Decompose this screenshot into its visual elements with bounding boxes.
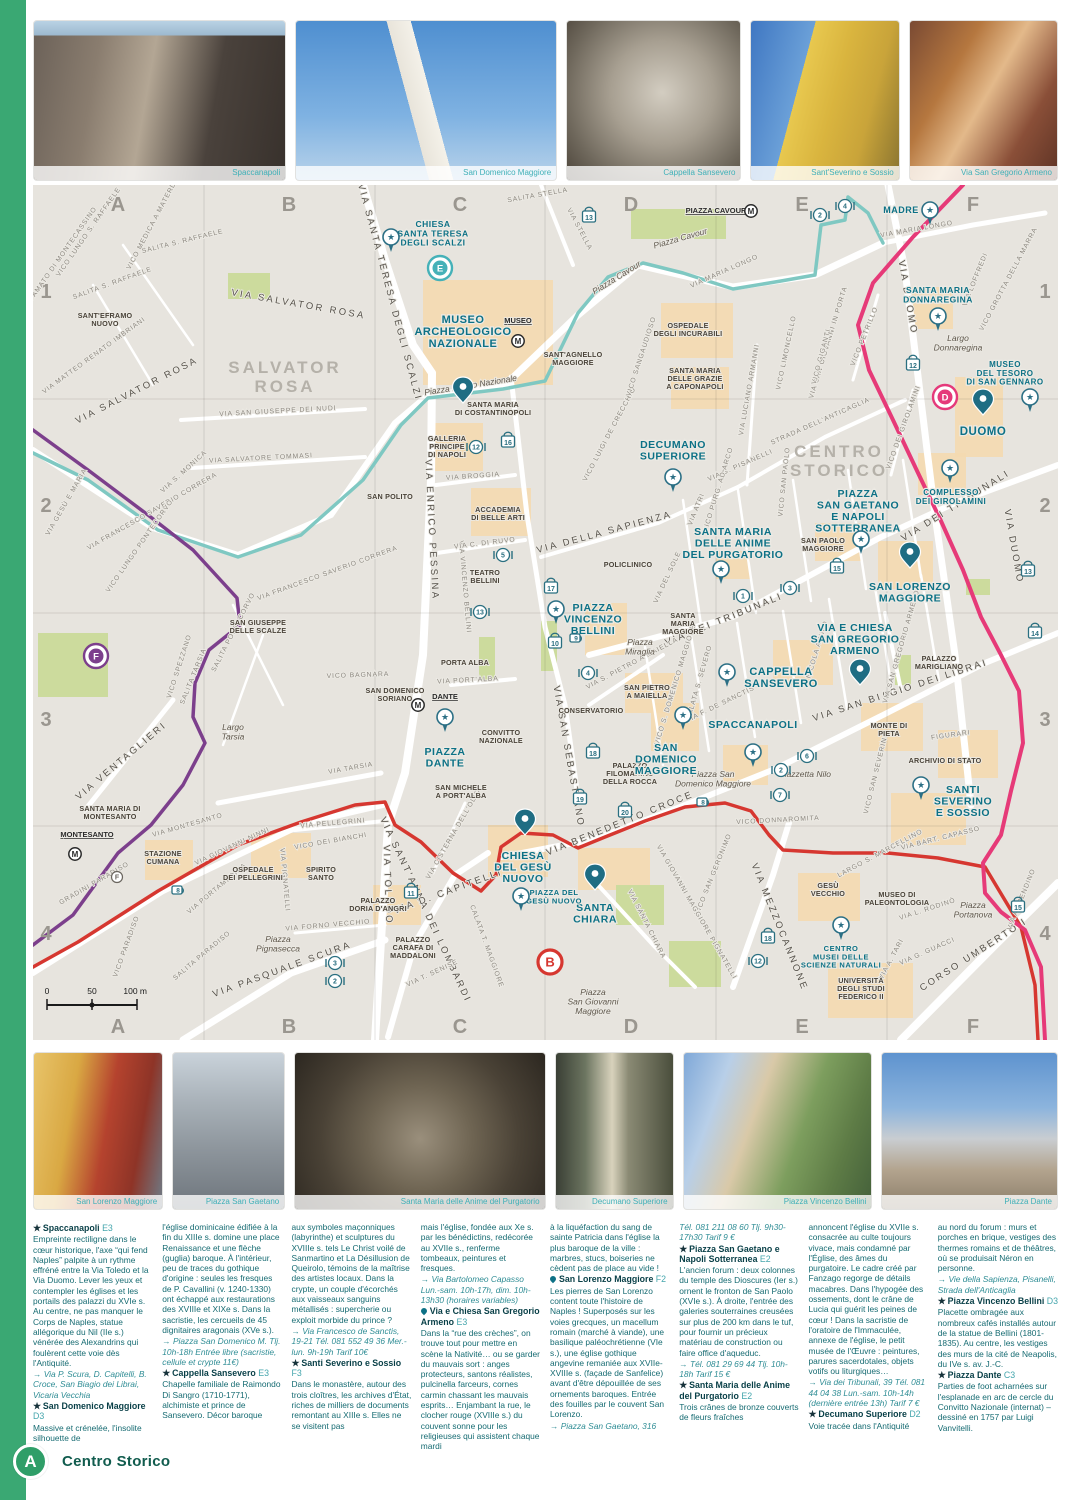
svg-text:11: 11: [407, 891, 415, 898]
site-label: SANT'AGNELLOMAGGIORE: [544, 350, 603, 367]
svg-text:18: 18: [764, 936, 772, 943]
poi-label: COMPLESSODEI GIROLAMINI: [916, 488, 987, 506]
pin-icon: [420, 1307, 428, 1315]
photo-caption: San Domenico Maggiore: [296, 166, 556, 180]
photo-gaetano: Piazza San Gaetano: [172, 1052, 285, 1210]
poi-label: CAPPELLASANSEVERO: [744, 666, 818, 690]
ring-badge-D: D: [933, 385, 957, 409]
poi-label: SANTACHIARA: [573, 902, 617, 926]
landmark-block: [955, 377, 1003, 457]
star-icon: ★: [809, 1409, 817, 1419]
entry-description: aux symboles maçonniques (labyrinthe) et…: [292, 1222, 412, 1325]
metro-icon: M: [745, 205, 757, 217]
svg-text:D: D: [942, 392, 949, 403]
entry-name: Decumano Superiore: [818, 1409, 906, 1419]
photo-san-domenico: San Domenico Maggiore: [295, 20, 557, 181]
entry-description: Dans le monastère, autour des trois cloî…: [292, 1379, 412, 1430]
grid-number: 4: [1039, 923, 1051, 945]
svg-text:3: 3: [333, 961, 337, 968]
metro-station-name: DANTE: [432, 692, 458, 701]
star-icon: ★: [33, 1223, 41, 1233]
photo-severino: Sant'Severino e Sossio: [750, 20, 899, 181]
entry-description: Chapelle familiale de Raimondo Di Sangro…: [162, 1379, 282, 1420]
photo-sansevero: Cappella Sansevero: [566, 20, 741, 181]
svg-text:8: 8: [701, 799, 705, 806]
site-label: ARCHIVIO DI STATO: [909, 756, 982, 765]
entry-practical-info: → Vie della Sapienza, Pisanelli, Strada …: [938, 1274, 1058, 1295]
site-label: SANTA MARIADELLE GRAZIEA CAPONAPOLI: [666, 366, 723, 391]
svg-text:2: 2: [333, 979, 337, 986]
svg-text:★: ★: [387, 232, 395, 242]
guide-text-columns: ★Spaccanapoli E3Empreinte rectiligne dan…: [33, 1222, 1058, 1440]
ring-badge-E: E: [428, 256, 452, 280]
grid-letter: C: [453, 194, 467, 216]
bottom-photo-strip: San Lorenzo MaggiorePiazza San GaetanoSa…: [33, 1052, 1058, 1210]
poi-label: PIAZZADANTE: [425, 746, 466, 770]
svg-text:★: ★: [552, 604, 560, 614]
svg-text:E: E: [437, 263, 443, 274]
svg-text:2: 2: [818, 213, 822, 220]
poi-label: SANTA MARIADELLE ANIMEDEL PURGATORIO: [683, 526, 784, 561]
grid-number: 2: [40, 495, 51, 517]
metro-icon: M: [412, 699, 424, 711]
grid-reference: E3: [456, 1317, 467, 1327]
svg-text:12: 12: [909, 363, 917, 370]
pin-icon: [549, 1275, 557, 1283]
top-photo-strip: SpaccanapoliSan Domenico MaggioreCappell…: [33, 20, 1058, 181]
site-label: SAN GIUSEPPEDELLE SCALZE: [230, 618, 287, 635]
grid-reference: D2: [909, 1409, 920, 1419]
site-label: PALAZZOCARAFA DIMADDALONI: [390, 935, 436, 960]
metro-icon: M: [512, 335, 524, 347]
svg-text:13: 13: [585, 215, 593, 222]
entry-description: Dans la “rue des crèches”, on trouve tou…: [421, 1328, 541, 1452]
svg-text:7: 7: [778, 793, 782, 800]
site-label: ACCADEMIADI BELLE ARTI: [471, 505, 525, 522]
star-icon: ★: [33, 1401, 41, 1411]
region-name: Centro Storico: [62, 1453, 170, 1470]
photo-gregorio: Via San Gregorio Armeno: [909, 20, 1058, 181]
entry-heading: ★Piazza Dante C3: [938, 1370, 1058, 1380]
entry-practical-info: → Tél. 081 29 69 44 Tlj. 10h-18h Tarif 1…: [679, 1359, 799, 1380]
site-label: SAN PIETROA MAIELLA: [624, 683, 670, 700]
entry-name: Santa Maria delle Anime del Purgatorio: [679, 1380, 790, 1400]
svg-text:★: ★: [934, 311, 942, 321]
scale-label: 50: [87, 986, 97, 996]
guide-column-4: mais l'église, fondée aux Xe s. par les …: [421, 1222, 541, 1440]
svg-text:12: 12: [754, 959, 762, 966]
entry-name: Spaccanapoli: [43, 1223, 100, 1233]
photo-caption: Cappella Sansevero: [567, 166, 740, 180]
svg-text:★: ★: [441, 712, 449, 722]
site-label: SANTA MARIA DIMONTESANTO: [79, 804, 140, 821]
svg-text:1: 1: [741, 594, 745, 601]
svg-text:★: ★: [857, 534, 865, 544]
grid-letter: F: [967, 1016, 979, 1038]
svg-text:★: ★: [749, 747, 757, 757]
entry-heading: ★Santi Severino e Sossio F3: [292, 1358, 412, 1379]
star-icon: ★: [679, 1380, 687, 1390]
svg-text:17: 17: [547, 586, 555, 593]
entry-heading: ★Santa Maria delle Anime del Purgatorio …: [679, 1380, 799, 1401]
site-label: SPIRITOSANTO: [306, 865, 336, 882]
cafe-badge-8: 8: [172, 886, 183, 894]
grid-number: 3: [40, 709, 51, 731]
poi-label: MADRE: [883, 205, 919, 215]
svg-text:20: 20: [621, 810, 629, 817]
svg-text:★: ★: [723, 667, 731, 677]
map-canvas: AABBCCDDEEFF11223344SALVATORROSACENTROST…: [33, 185, 1058, 1040]
site-label: PALAZZOMARIGLIANO: [915, 654, 964, 671]
svg-text:3: 3: [788, 586, 792, 593]
metro-station-name: MUSEO: [504, 316, 532, 325]
entry-description: l'église dominicaine édifiée à la fin du…: [162, 1222, 282, 1335]
entry-description: annoncent l'église du XVIIe s. consacrée…: [809, 1222, 929, 1376]
entry-description: mais l'église, fondée aux Xe s. par les …: [421, 1222, 541, 1273]
guide-column-3: aux symboles maçonniques (labyrinthe) et…: [292, 1222, 412, 1440]
grid-letter: E: [795, 194, 808, 216]
grid-letter: A: [111, 1016, 125, 1038]
entry-heading: San Lorenzo Maggiore F2: [550, 1274, 670, 1284]
grid-reference: D3: [1047, 1296, 1058, 1306]
grid-reference: F3: [292, 1368, 302, 1378]
photo-caption: San Lorenzo Maggiore: [34, 1195, 162, 1209]
region-letter-badge: A: [13, 1444, 48, 1479]
entry-heading: ★Piazza San Gaetano e Napoli Sotterranea…: [679, 1244, 799, 1265]
entry-practical-info: → Via Francesco de Sanctis, 19-21 Tél. 0…: [292, 1326, 412, 1357]
grid-letter: B: [282, 1016, 296, 1038]
site-label: POLICLINICO: [604, 560, 653, 569]
svg-text:4: 4: [586, 671, 590, 678]
guide-column-6: Tél. 081 211 08 60 Tlj. 9h30-17h30 Tarif…: [679, 1222, 799, 1440]
site-label: CONSERVATORIO: [559, 706, 624, 715]
svg-text:★: ★: [679, 710, 687, 720]
entry-practical-info: → Piazza San Gaetano, 316: [550, 1421, 670, 1431]
guide-column-1: ★Spaccanapoli E3Empreinte rectiligne dan…: [33, 1222, 153, 1440]
entry-name: Via e Chiesa San Gregorio Armeno: [421, 1306, 540, 1326]
svg-text:★: ★: [926, 205, 934, 215]
svg-text:10: 10: [551, 641, 559, 648]
poi-label: SANTA MARIADONNAREGINA: [903, 285, 973, 304]
svg-text:M: M: [515, 337, 522, 346]
poi-label: SPACCANAPOLI: [708, 719, 797, 731]
place-name: LargoTarsia: [222, 722, 245, 742]
entry-description: Trois crânes de bronze couverts de fleur…: [679, 1402, 799, 1423]
grid-reference: E2: [760, 1254, 771, 1264]
grid-reference: E3: [102, 1223, 113, 1233]
photo-purgatorio: Santa Maria delle Anime del Purgatorio: [294, 1052, 545, 1210]
ring-badge-F: F: [112, 872, 123, 883]
svg-text:★: ★: [517, 891, 525, 901]
entry-name: San Domenico Maggiore: [43, 1401, 146, 1411]
photo-dante: Piazza Dante: [881, 1052, 1058, 1210]
svg-text:9: 9: [574, 635, 578, 642]
scale-label: 100 m: [123, 986, 147, 996]
site-label: SAN POLITO: [367, 492, 413, 501]
svg-text:★: ★: [1026, 392, 1034, 402]
photo-caption: Decumano Superiore: [556, 1195, 673, 1209]
entry-description: Voie tracée dans l'Antiquité: [809, 1421, 929, 1431]
guidebook-page: SpaccanapoliSan Domenico MaggioreCappell…: [0, 0, 1084, 1500]
entry-description: L'ancien forum : deux colonnes du temple…: [679, 1265, 799, 1358]
entry-heading: ★Piazza Vincenzo Bellini D3: [938, 1296, 1058, 1306]
entry-name: Santi Severino e Sossio: [301, 1358, 401, 1368]
photo-caption: Spaccanapoli: [34, 166, 285, 180]
green-edge-bar: [0, 0, 26, 1500]
svg-text:2: 2: [779, 768, 783, 775]
svg-text:18: 18: [589, 751, 597, 758]
site-label: GALLERIAPRINCIPEDI NAPOLI: [428, 434, 466, 459]
entry-description: Les pierres de San Lorenzo content toute…: [550, 1286, 670, 1420]
grid-reference: F2: [656, 1274, 666, 1284]
svg-text:F: F: [93, 651, 99, 662]
entry-description: Empreinte rectiligne dans le cœur histor…: [33, 1234, 153, 1368]
photo-sanlorenzo: San Lorenzo Maggiore: [33, 1052, 163, 1210]
svg-text:M: M: [748, 207, 755, 216]
grid-number: 4: [40, 923, 52, 945]
cafe-badge-8: 8: [697, 798, 708, 806]
metro-station-name: PIAZZA CAVOUR: [686, 206, 747, 215]
site-label: UNIVERSITÀDEGLI STUDIFEDERICO II: [837, 976, 885, 1001]
site-label: SAN PAOLOMAGGIORE: [801, 536, 845, 553]
entry-heading: ★Spaccanapoli E3: [33, 1223, 153, 1233]
entry-description: à la liquéfaction du sang de sainte Patr…: [550, 1222, 670, 1273]
grid-number: 2: [1039, 495, 1050, 517]
grid-letter: F: [967, 194, 979, 216]
poi-label: CHIESADEL GESÙNUOVO: [494, 850, 551, 885]
svg-text:★: ★: [917, 780, 925, 790]
svg-text:6: 6: [805, 754, 809, 761]
metro-icon: M: [69, 848, 81, 860]
grid-number: 3: [1039, 709, 1050, 731]
star-icon: ★: [292, 1358, 300, 1368]
svg-text:8: 8: [176, 887, 180, 894]
entry-practical-info: → Via dei Tribunali, 39 Tél. 081 44 04 3…: [809, 1377, 929, 1408]
star-icon: ★: [938, 1296, 946, 1306]
entry-name: Cappella Sansevero: [172, 1368, 256, 1378]
entry-heading: ★San Domenico Maggiore D3: [33, 1401, 153, 1422]
svg-text:16: 16: [504, 440, 512, 447]
ring-badge-B: B: [538, 950, 562, 974]
grid-reference: D3: [33, 1411, 44, 1421]
svg-text:M: M: [415, 701, 422, 710]
site-label: TEATROBELLINI: [470, 568, 500, 585]
guide-column-5: à la liquéfaction du sang de sainte Patr…: [550, 1222, 670, 1440]
entry-name: San Lorenzo Maggiore: [559, 1274, 653, 1284]
grid-reference: E3: [258, 1368, 269, 1378]
site-label: STAZIONECUMANA: [144, 849, 181, 866]
photo-caption: Via San Gregorio Armeno: [910, 166, 1057, 180]
poi-label: DECUMANOSUPERIORE: [640, 439, 706, 463]
entry-description: Placette ombragée aux nombreux cafés ins…: [938, 1307, 1058, 1369]
svg-text:5: 5: [501, 553, 505, 560]
entry-practical-info: → Via P. Scura, D. Capitelli, B. Croce, …: [33, 1369, 153, 1400]
svg-text:4: 4: [843, 204, 847, 211]
guide-column-7: annoncent l'église du XVIIe s. consacrée…: [809, 1222, 929, 1440]
entry-heading: Via e Chiesa San Gregorio Armeno E3: [421, 1306, 541, 1327]
poi-label: PIAZZAVINCENZOBELLINI: [564, 602, 622, 637]
svg-text:F: F: [115, 875, 120, 882]
svg-text:13: 13: [1024, 569, 1032, 576]
svg-text:★: ★: [669, 472, 677, 482]
svg-text:12: 12: [472, 445, 480, 452]
site-label: CONVITTONAZIONALE: [479, 728, 523, 745]
grid-reference: E2: [741, 1391, 752, 1401]
poi-label: SAN LORENZOMAGGIORE: [869, 581, 951, 605]
star-icon: ★: [938, 1370, 946, 1380]
entry-practical-info: → Via Bartolomeo Capasso Lun.-sam. 10h-1…: [421, 1274, 541, 1305]
poi-label: PIAZZA DELGESÙ NUOVO: [526, 888, 582, 905]
photo-caption: Piazza Vincenzo Bellini: [684, 1195, 872, 1209]
photo-decumano: Decumano Superiore: [555, 1052, 674, 1210]
svg-text:★: ★: [837, 920, 845, 930]
svg-text:13: 13: [476, 610, 484, 617]
city-map: AABBCCDDEEFF11223344SALVATORROSACENTROST…: [33, 185, 1058, 1040]
district-label: CENTROSTORICO: [790, 442, 888, 480]
photo-caption: Sant'Severino e Sossio: [751, 166, 898, 180]
guide-column-2: l'église dominicaine édifiée à la fin du…: [162, 1222, 282, 1440]
svg-text:19: 19: [576, 797, 584, 804]
place-name: PiazzaMiraglia: [625, 637, 655, 657]
svg-text:B: B: [545, 955, 554, 970]
cafe-badge-9: 9: [570, 634, 581, 642]
entry-description: Massive et crénelée, l'insolite silhouet…: [33, 1423, 153, 1444]
poi-label: DUOMO: [960, 426, 1007, 438]
photo-caption: Piazza Dante: [882, 1195, 1057, 1209]
photo-spaccanapoli: Spaccanapoli: [33, 20, 286, 181]
entry-name: Piazza Dante: [948, 1370, 1002, 1380]
svg-text:★: ★: [946, 463, 954, 473]
page-footer: A Centro Storico: [13, 1444, 170, 1479]
entry-heading: ★Decumano Superiore D2: [809, 1409, 929, 1419]
grid-number: 1: [1039, 281, 1050, 303]
site-label: SAN MICHELEA PORT'ALBA: [435, 783, 487, 800]
entry-heading: ★Cappella Sansevero E3: [162, 1368, 282, 1378]
metro-station-name: MONTESANTO: [60, 830, 113, 839]
svg-text:14: 14: [1031, 631, 1039, 638]
entry-practical-info: → Piazza San Domenico M. Tlj. 10h-18h En…: [162, 1336, 282, 1367]
entry-practical-info: Tél. 081 211 08 60 Tlj. 9h30-17h30 Tarif…: [679, 1222, 799, 1243]
grid-letter: E: [795, 1016, 808, 1038]
guide-column-8: au nord du forum : murs et porches en br…: [938, 1222, 1058, 1440]
photo-bellini: Piazza Vincenzo Bellini: [683, 1052, 873, 1210]
star-icon: ★: [679, 1244, 687, 1254]
svg-text:15: 15: [833, 566, 841, 573]
ring-badge-F: F: [84, 644, 108, 668]
scale-label: 0: [45, 986, 50, 996]
site-label: PORTA ALBA: [441, 658, 489, 667]
photo-caption: Piazza San Gaetano: [173, 1195, 284, 1209]
svg-text:15: 15: [1014, 905, 1022, 912]
entry-name: Piazza Vincenzo Bellini: [948, 1296, 1045, 1306]
grid-letter: C: [453, 1016, 467, 1038]
photo-caption: Santa Maria delle Anime del Purgatorio: [295, 1195, 544, 1209]
grid-letter: D: [624, 194, 638, 216]
entry-description: Parties de foot acharnées sur l'esplanad…: [938, 1381, 1058, 1432]
svg-text:M: M: [72, 850, 79, 859]
grid-letter: D: [624, 1016, 638, 1038]
entry-description: au nord du forum : murs et porches en br…: [938, 1222, 1058, 1273]
svg-text:★: ★: [717, 564, 725, 574]
grid-letter: B: [282, 194, 296, 216]
star-icon: ★: [162, 1368, 170, 1378]
grid-reference: C3: [1004, 1370, 1015, 1380]
